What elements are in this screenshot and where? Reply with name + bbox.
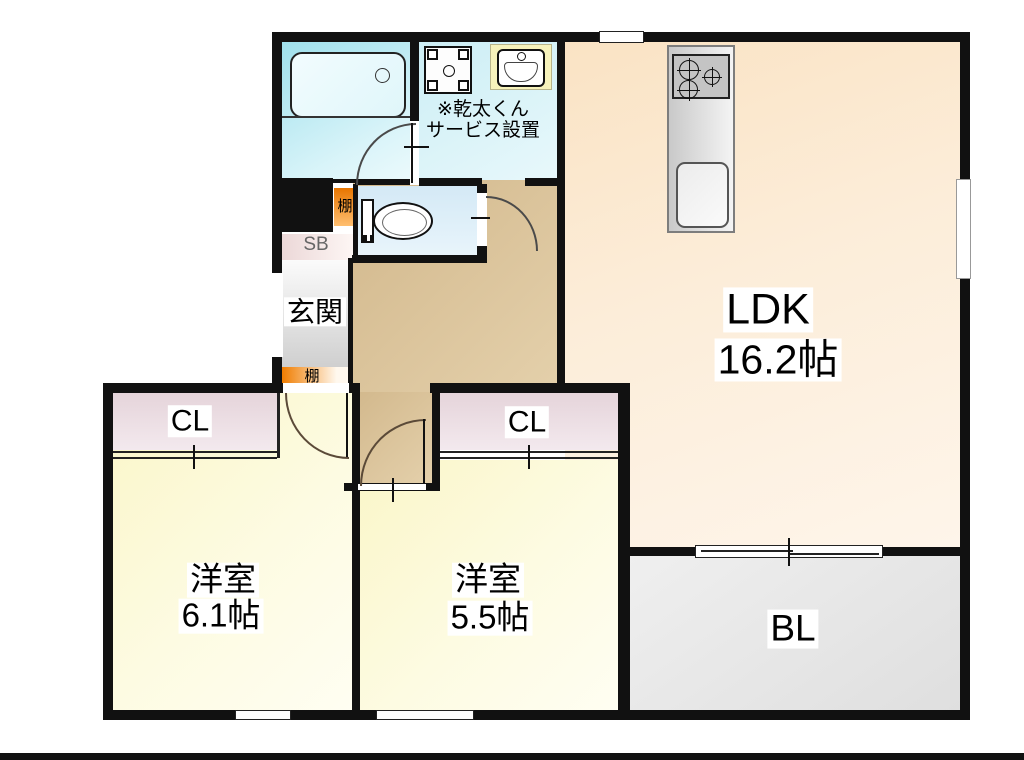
shelf-top-label: 棚 [334,199,355,215]
wall-hall-ldk [557,42,565,391]
bathtub [290,52,406,118]
wall-closet1-top [103,383,283,393]
bedroom2-name-label: 洋室 [452,563,524,598]
bedroom1-name-label: 洋室 [187,563,259,598]
dryer-note: ※乾太くん サービス設置 [423,99,543,141]
closet2-slide-tick [528,445,530,469]
wall-right [960,32,970,720]
image-bottom-border [0,753,1024,760]
closet1-slide-line [113,457,277,459]
shoe-box-label: SB [300,235,331,255]
ldk-area-label: 16.2帖 [715,338,842,381]
closet1-slide-tick [193,445,195,469]
bedroom2-door-tick [392,478,394,502]
wall-toilet-bottom [352,255,477,263]
bath-door-leaf [411,123,413,183]
wall-shelf-right [353,184,358,258]
washer-pan-icon [424,46,472,94]
entrance-door-opening [271,273,283,357]
window-top [599,31,644,43]
wall-mass-bath-corner [272,178,333,232]
balcony-door-tick [788,538,790,566]
toilet-door-tick [471,217,490,219]
closet1-label: CL [168,405,212,437]
wall-entrance-right [348,258,353,392]
bedroom1-area-label: 6.1帖 [179,599,264,634]
burner-icon [704,69,720,85]
bathtub-drain-icon [375,68,390,83]
closet1-slide-line [113,451,277,453]
wall-closet1-right-line [277,393,280,458]
wall-hall-right [432,392,440,491]
wall-closet2-top [430,383,630,393]
sink-icon [497,49,545,87]
bedroom2-area-label: 5.5帖 [448,601,533,636]
bedroom2-door-leaf [423,419,425,484]
window-bedroom2 [376,710,474,720]
bath-door-tick [404,146,429,148]
entrance-label: 玄関 [284,297,346,326]
bath-platform-line [282,116,410,118]
wall-left-lower [103,383,113,720]
shelf-bottom-label: 棚 [301,369,322,385]
closet2-label: CL [505,406,549,438]
window-right [956,179,971,279]
window-bedroom1 [235,710,291,720]
ldk-name-label: LDK [723,287,813,332]
faucet-icon [517,52,526,61]
burner-icon [679,60,699,80]
dryer-note-line2: サービス設置 [426,120,540,141]
kitchen-sink-icon [676,162,729,228]
dryer-note-line1: ※乾太くん [426,99,540,120]
bedroom1-door-leaf [346,393,348,457]
burner-icon [679,80,698,99]
wall-bottom [103,710,970,720]
wall-washroom-stub [525,178,557,186]
wall-bedroom-divider [352,388,360,710]
floor-plan: ※乾太くん サービス設置 LDK 16.2帖 洋室 6.1帖 洋室 5.5帖 C… [0,0,1024,760]
toilet-seat-icon [382,209,427,236]
balcony-label: BL [767,610,818,649]
